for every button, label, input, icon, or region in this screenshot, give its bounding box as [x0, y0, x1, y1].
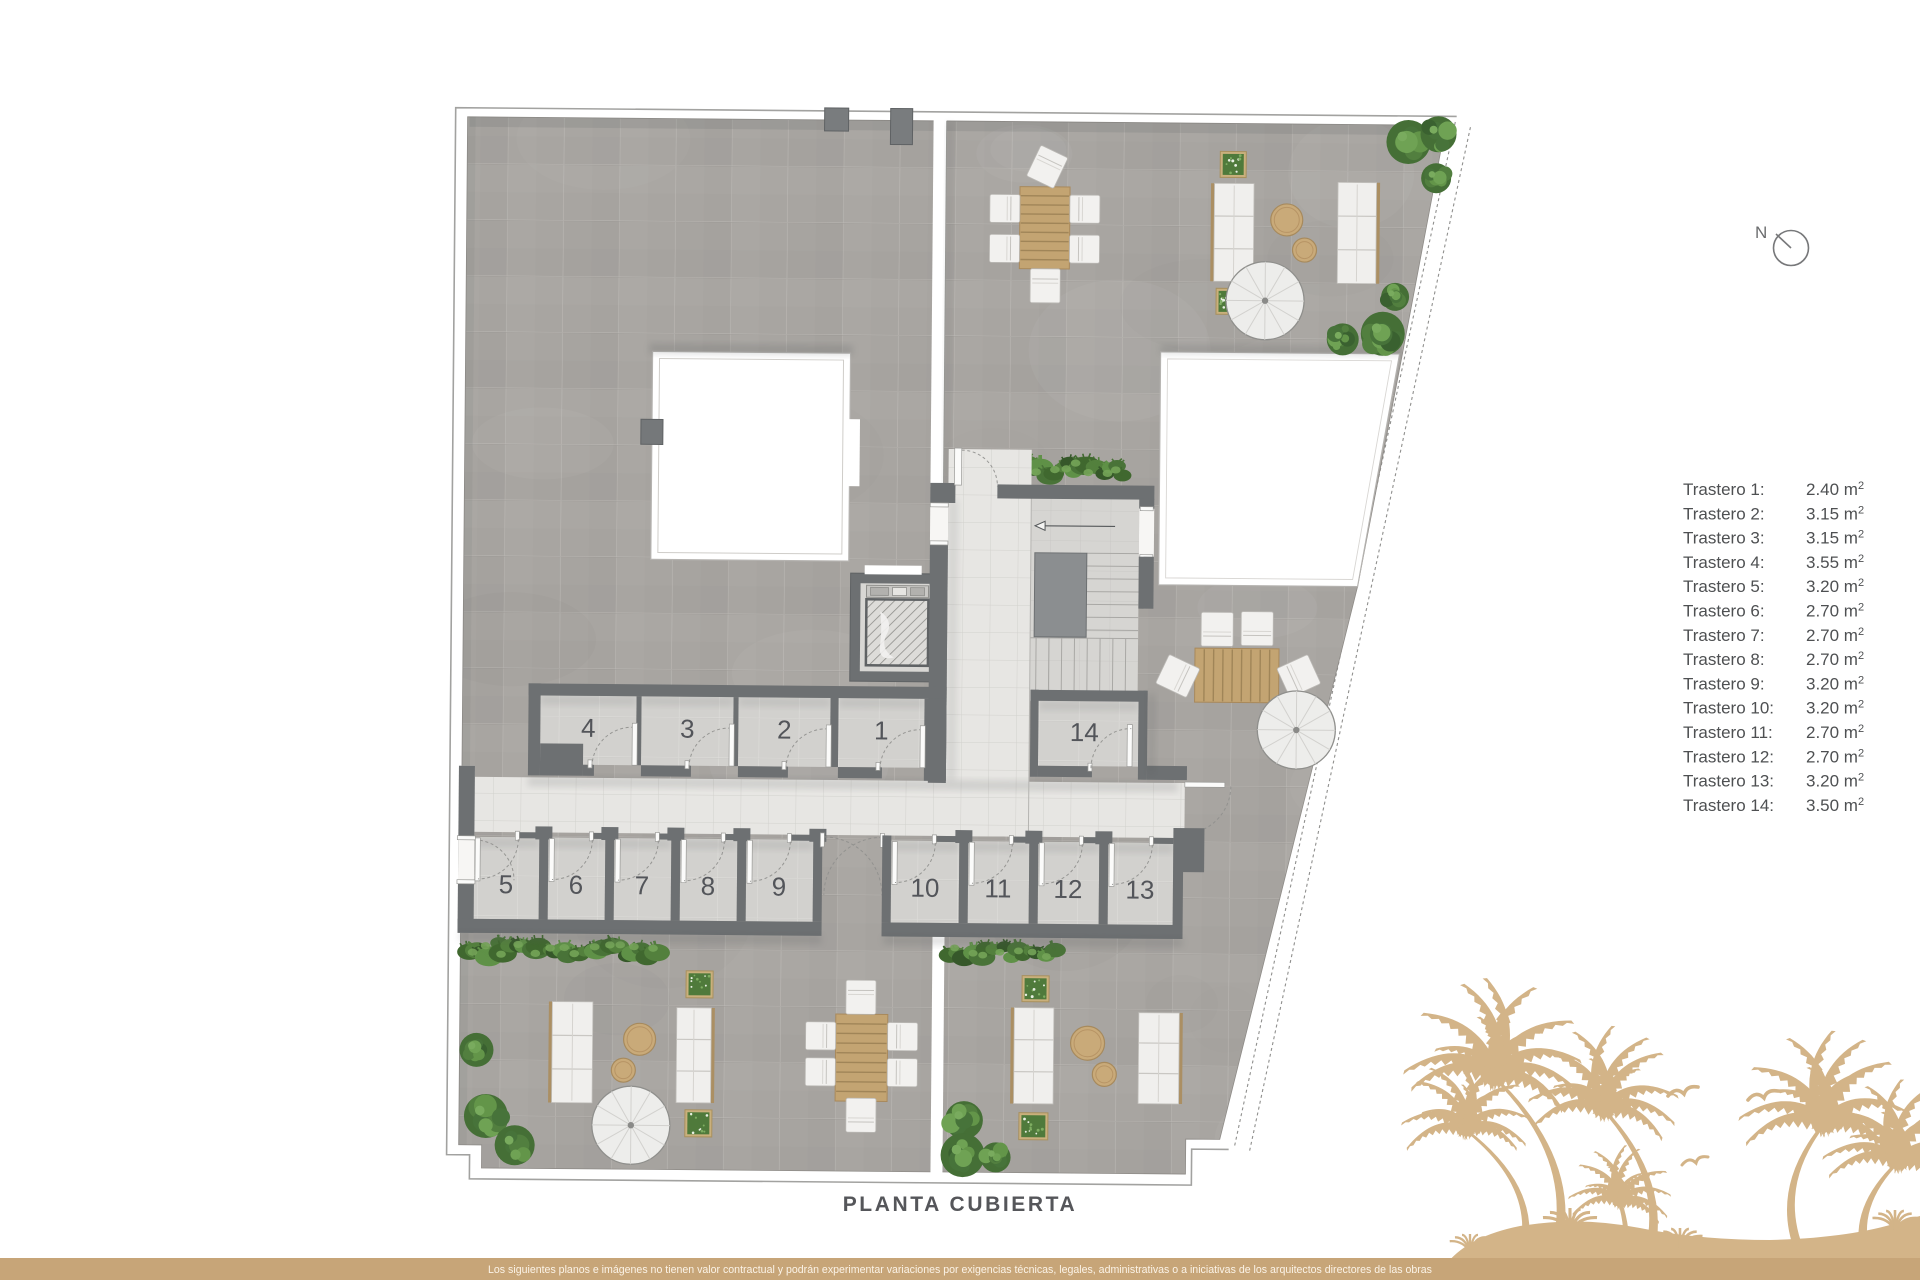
svg-text:4: 4: [581, 713, 596, 743]
svg-text:Los siguientes planos e imágen: Los siguientes planos e imágenes no tien…: [488, 1264, 1432, 1276]
svg-text:3.20 m2: 3.20 m2: [1806, 772, 1864, 791]
svg-text:2.40 m2: 2.40 m2: [1806, 480, 1864, 499]
svg-text:3.15 m2: 3.15 m2: [1806, 529, 1864, 548]
svg-text:7: 7: [635, 870, 650, 900]
svg-text:PLANTA CUBIERTA: PLANTA CUBIERTA: [843, 1193, 1078, 1216]
svg-text:Trastero 1:: Trastero 1:: [1683, 480, 1765, 499]
svg-text:Trastero 11:: Trastero 11:: [1683, 723, 1773, 742]
svg-text:1: 1: [874, 715, 889, 745]
svg-text:3.20 m2: 3.20 m2: [1806, 674, 1864, 693]
svg-text:10: 10: [910, 873, 939, 903]
svg-text:13: 13: [1125, 875, 1154, 905]
svg-text:3.20 m2: 3.20 m2: [1806, 699, 1864, 718]
svg-text:Trastero 2:: Trastero 2:: [1683, 504, 1765, 523]
svg-text:9: 9: [772, 871, 787, 901]
svg-text:3.50 m2: 3.50 m2: [1806, 796, 1864, 815]
svg-text:3.55 m2: 3.55 m2: [1806, 553, 1864, 572]
svg-text:12: 12: [1053, 874, 1082, 904]
svg-text:3.20 m2: 3.20 m2: [1806, 577, 1864, 596]
svg-text:Trastero 14:: Trastero 14:: [1683, 796, 1774, 815]
svg-text:8: 8: [701, 871, 716, 901]
svg-text:Trastero 9:: Trastero 9:: [1683, 674, 1765, 693]
svg-text:Trastero 8:: Trastero 8:: [1683, 650, 1765, 669]
svg-text:Trastero 13:: Trastero 13:: [1683, 772, 1774, 791]
svg-text:Trastero 10:: Trastero 10:: [1683, 699, 1774, 718]
svg-text:Trastero 3:: Trastero 3:: [1683, 529, 1765, 548]
svg-text:3.15 m2: 3.15 m2: [1806, 504, 1864, 523]
svg-text:6: 6: [569, 870, 584, 900]
svg-text:N: N: [1755, 223, 1767, 242]
svg-text:2.70 m2: 2.70 m2: [1806, 650, 1864, 669]
svg-text:2.70 m2: 2.70 m2: [1806, 602, 1864, 621]
svg-text:2.70 m2: 2.70 m2: [1806, 626, 1864, 645]
svg-text:3: 3: [680, 714, 695, 744]
svg-text:2.70 m2: 2.70 m2: [1806, 723, 1864, 742]
svg-text:2.70 m2: 2.70 m2: [1806, 747, 1864, 766]
svg-text:14: 14: [1070, 717, 1099, 747]
svg-text:2: 2: [777, 714, 792, 744]
svg-text:Trastero 12:: Trastero 12:: [1683, 747, 1774, 766]
svg-text:5: 5: [499, 869, 514, 899]
svg-text:Trastero 5:: Trastero 5:: [1683, 577, 1765, 596]
svg-text:Trastero 4:: Trastero 4:: [1683, 553, 1765, 572]
svg-text:Trastero 7:: Trastero 7:: [1683, 626, 1765, 645]
svg-text:11: 11: [984, 873, 1011, 903]
svg-text:Trastero 6:: Trastero 6:: [1683, 602, 1765, 621]
